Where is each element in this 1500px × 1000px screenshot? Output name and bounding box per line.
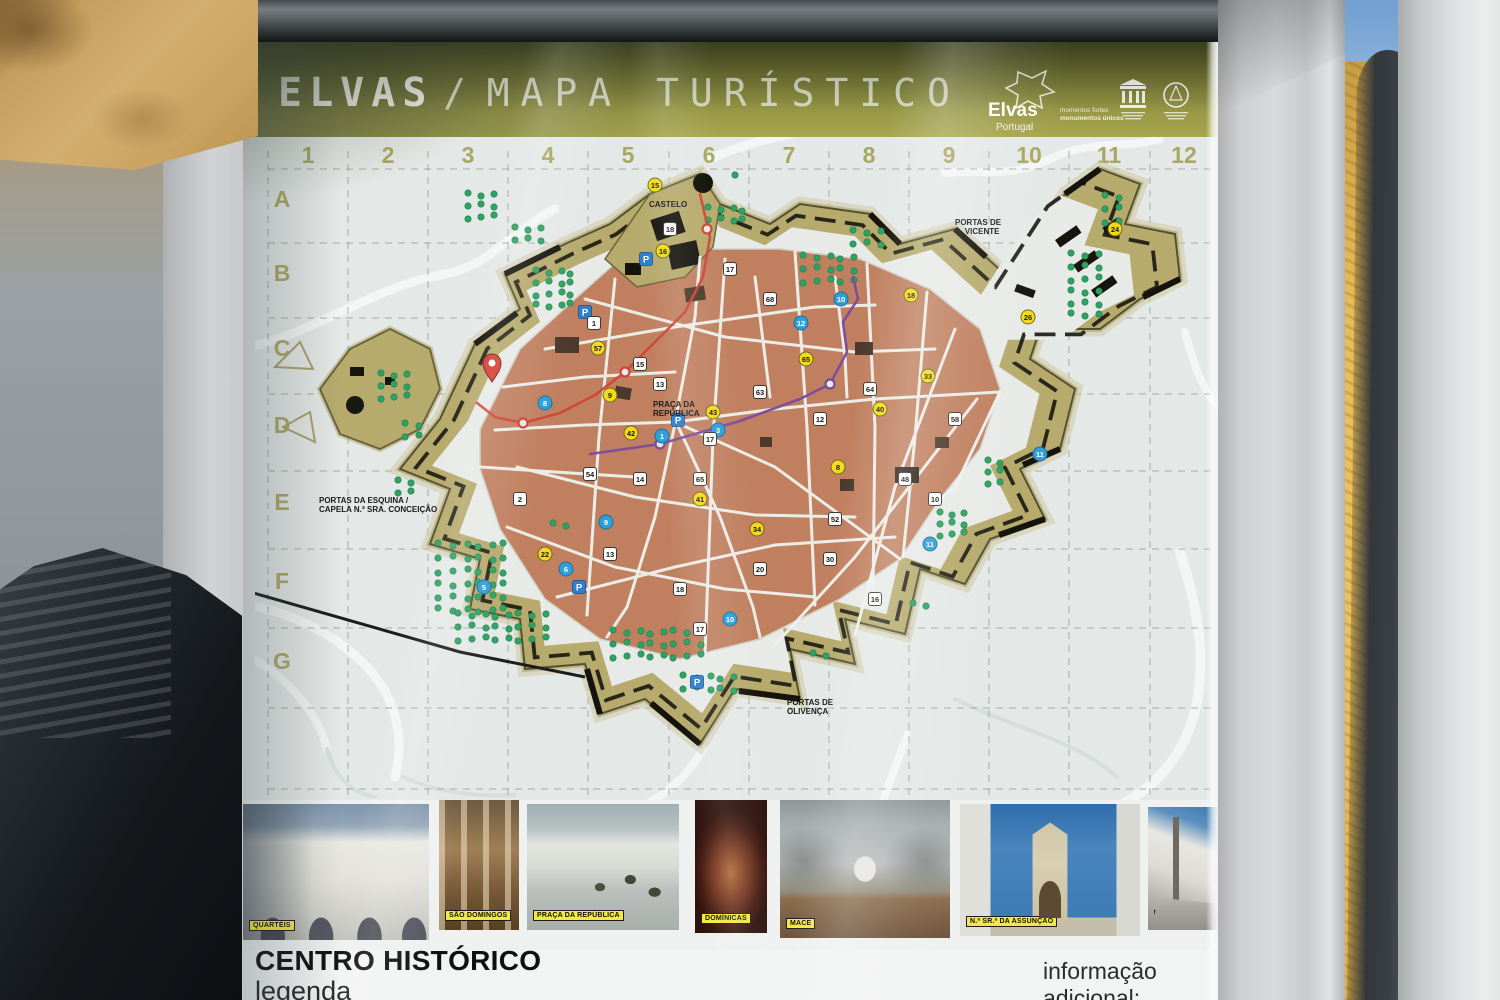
sign-frame-top-shadow — [243, 0, 1218, 42]
svg-text:68: 68 — [766, 295, 774, 304]
photo-label-chip: QUARTÉIS — [249, 920, 295, 931]
svg-text:20: 20 — [756, 565, 764, 574]
svg-text:17: 17 — [706, 435, 714, 444]
stone-wall-corner — [0, 0, 258, 170]
svg-text:30: 30 — [826, 555, 834, 564]
grid-column-label: 7 — [783, 142, 796, 168]
photo-dominicas: DOMÍNICAS — [695, 800, 767, 933]
footer-subheading: legenda — [255, 976, 351, 1000]
grid-column-label: 9 — [943, 142, 956, 168]
photo-assuncao: N.ª SR.ª DA ASSUNÇÃO — [960, 804, 1140, 936]
svg-text:P: P — [576, 582, 583, 593]
unesco-emblem-icon — [1120, 79, 1146, 119]
photo-mace: MACE — [780, 800, 950, 938]
svg-text:43: 43 — [709, 408, 717, 417]
sign-title-separator: / — [443, 71, 477, 115]
svg-text:16: 16 — [871, 595, 879, 604]
grid-column-label: 8 — [863, 142, 876, 168]
sign-title-primary: ELVAS — [278, 70, 433, 116]
svg-text:17: 17 — [726, 265, 734, 274]
grid-row-label: E — [274, 489, 289, 515]
svg-text:41: 41 — [696, 495, 704, 504]
photo-domingos: SÃO DOMINGOS — [439, 800, 519, 930]
photo-label-chip: MACE — [786, 918, 815, 929]
svg-text:15: 15 — [651, 181, 659, 190]
world-heritage-emblem-icon — [1164, 83, 1188, 119]
elvas-star-fort-logo: Elvas Portugal momentos fortes monumento… — [988, 71, 1124, 133]
grid-column-label: 10 — [1016, 142, 1042, 168]
svg-text:8: 8 — [836, 463, 840, 472]
svg-text:18: 18 — [676, 585, 684, 594]
svg-text:40: 40 — [876, 405, 884, 414]
map-place-label: PORTAS DES. VICENTE — [955, 218, 1002, 236]
svg-text:52: 52 — [831, 515, 839, 524]
grid-row-label: B — [274, 260, 291, 286]
svg-text:17: 17 — [696, 625, 704, 634]
photo-quarteis: QUARTÉIS — [243, 804, 429, 940]
svg-text:11: 11 — [926, 540, 934, 549]
svg-text:24: 24 — [1111, 225, 1120, 234]
grid-column-label: 2 — [382, 142, 395, 168]
svg-text:26: 26 — [1024, 313, 1032, 322]
svg-text:10: 10 — [726, 615, 734, 624]
svg-text:10: 10 — [837, 295, 845, 304]
svg-text:57: 57 — [594, 344, 602, 353]
grid-column-label: 12 — [1171, 142, 1197, 168]
photo-label-chip: DOMÍNICAS — [701, 913, 751, 924]
svg-text:11: 11 — [1036, 450, 1044, 459]
photo-label-chip: PRAÇA DA REPÚBLICA — [533, 910, 624, 921]
svg-text:18: 18 — [907, 291, 915, 300]
grid-row-label: A — [274, 186, 291, 212]
grid-column-label: 3 — [462, 142, 475, 168]
svg-text:monumentos únicos: monumentos únicos — [1060, 115, 1124, 122]
footer-heading: CENTRO HISTÓRICO — [255, 945, 541, 977]
svg-text:1: 1 — [592, 319, 596, 328]
svg-text:34: 34 — [753, 525, 762, 534]
svg-text:13: 13 — [656, 380, 664, 389]
svg-text:13: 13 — [606, 550, 614, 559]
svg-text:8: 8 — [543, 399, 547, 408]
sign-frame-right — [1218, 0, 1345, 1000]
logo-group: Elvas Portugal momentos fortes monumento… — [980, 68, 1210, 134]
grid-row-label: C — [274, 335, 291, 361]
svg-text:9: 9 — [608, 391, 612, 400]
map-sign-poster: ELVAS / MAPA TURÍSTICO Elvas Portugal mo… — [243, 42, 1218, 1000]
svg-text:12: 12 — [797, 319, 805, 328]
grid-row-label: F — [275, 568, 289, 594]
svg-text:58: 58 — [951, 415, 959, 424]
svg-text:48: 48 — [901, 475, 909, 484]
photo-label-chip: N.ª SR.ª DA ASSUNÇÃO — [966, 916, 1057, 927]
sign-title: ELVAS / MAPA TURÍSTICO — [278, 70, 961, 116]
sign-title-secondary: MAPA TURÍSTICO — [487, 71, 961, 115]
photo-label-chip: PELOURINHO — [1154, 910, 1211, 921]
glass-right-edge — [1206, 42, 1218, 1000]
svg-text:33: 33 — [924, 372, 932, 381]
svg-text:1: 1 — [660, 432, 664, 441]
svg-text:momentos fortes: momentos fortes — [1060, 107, 1109, 114]
photo-praca: PRAÇA DA REPÚBLICA — [527, 804, 679, 930]
svg-text:2: 2 — [518, 495, 522, 504]
map-place-label: PRAÇA DAREPÚBLICA — [653, 400, 700, 418]
scene: ELVAS / MAPA TURÍSTICO Elvas Portugal mo… — [0, 0, 1500, 1000]
svg-text:14: 14 — [636, 475, 645, 484]
svg-text:P: P — [643, 254, 650, 265]
grid-column-label: 6 — [703, 142, 716, 168]
svg-text:P: P — [694, 677, 701, 688]
sign-pillar — [1398, 0, 1500, 1000]
svg-text:9: 9 — [604, 518, 608, 527]
grid-column-label: 1 — [302, 142, 315, 168]
svg-text:Elvas: Elvas — [988, 100, 1038, 121]
svg-text:12: 12 — [816, 415, 824, 424]
svg-text:16: 16 — [659, 247, 667, 256]
footer-additional-info: informação adicional: — [1043, 958, 1218, 1000]
svg-text:15: 15 — [636, 360, 644, 369]
photo-label-chip: SÃO DOMINGOS — [445, 910, 511, 921]
svg-text:22: 22 — [541, 550, 549, 559]
photo-strip: QUARTÉISSÃO DOMINGOSPRAÇA DA REPÚBLICADO… — [243, 800, 1218, 950]
svg-text:64: 64 — [866, 385, 875, 394]
svg-text:6: 6 — [564, 565, 568, 574]
svg-text:5: 5 — [482, 583, 486, 592]
grid-column-label: 5 — [622, 142, 635, 168]
svg-text:Portugal: Portugal — [996, 122, 1033, 133]
foreground-dark-object — [0, 548, 242, 1000]
svg-text:54: 54 — [586, 470, 595, 479]
svg-text:42: 42 — [627, 429, 635, 438]
title-band: ELVAS / MAPA TURÍSTICO Elvas Portugal mo… — [243, 42, 1218, 137]
svg-text:65: 65 — [802, 355, 810, 364]
svg-text:10: 10 — [931, 495, 939, 504]
svg-text:63: 63 — [756, 388, 764, 397]
map-place-label: CASTELO — [649, 200, 687, 209]
ribbed-surface — [0, 548, 171, 738]
grid-column-label: 4 — [542, 142, 555, 168]
map-canvas: 123456789101112ABCDEFG — [255, 137, 1218, 804]
svg-text:65: 65 — [696, 475, 704, 484]
grid-row-label: G — [273, 648, 291, 674]
tourist-map: 123456789101112ABCDEFG — [243, 137, 1218, 804]
map-place-label: PORTAS DEOLIVENÇA — [787, 698, 834, 716]
svg-text:18: 18 — [666, 225, 674, 234]
